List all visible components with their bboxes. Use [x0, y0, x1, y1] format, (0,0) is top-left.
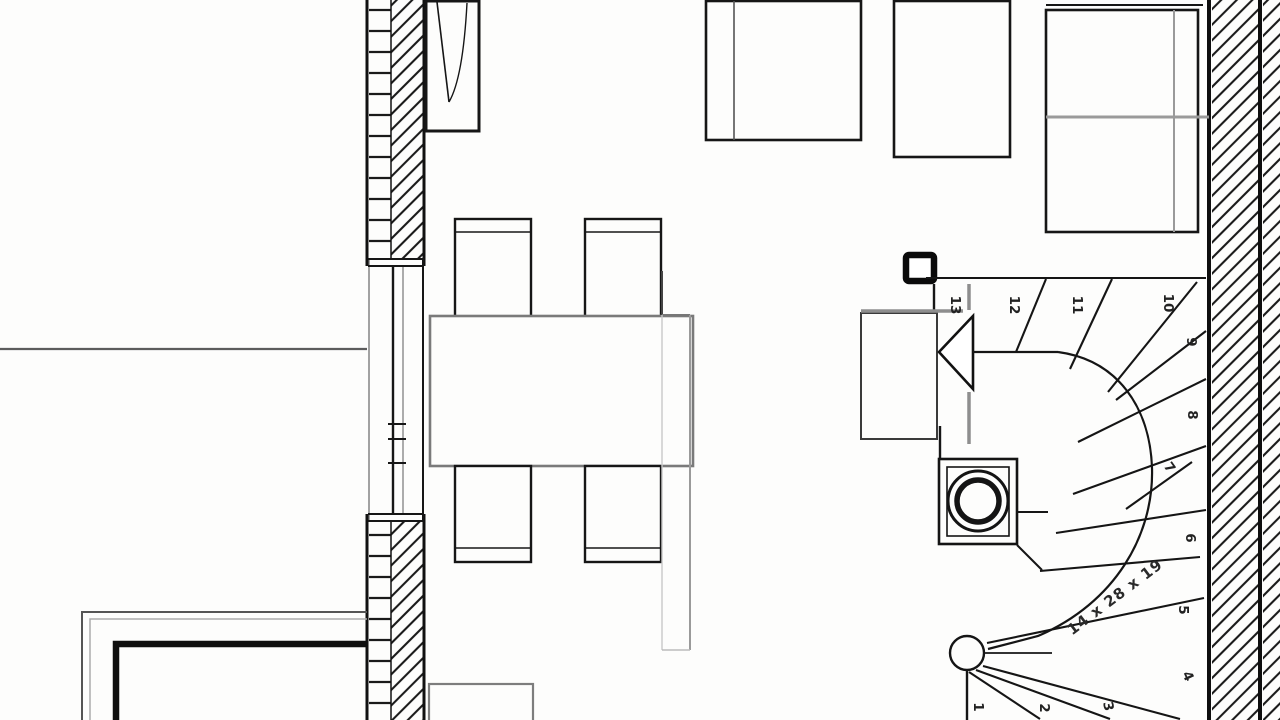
bed-right [894, 1, 1010, 157]
bed-left [706, 1, 861, 140]
entry-closet [426, 1, 479, 131]
step-number-10: 10 [1160, 294, 1176, 313]
step-number-12: 12 [1006, 296, 1022, 315]
cabinet-outline [861, 313, 937, 439]
right-exterior-wall [1209, 0, 1280, 720]
left-wall-insulation-bottom [369, 522, 391, 720]
step-number-6: 6 [1182, 533, 1198, 542]
step-number-13: 13 [947, 296, 963, 315]
chair-top-left [455, 219, 531, 329]
bed-right-outline [894, 1, 1010, 157]
step-number-1: 1 [970, 702, 986, 711]
left-wall-masonry-bottom [391, 522, 423, 720]
right-wall-masonry [1212, 0, 1258, 720]
step-number-5: 5 [1175, 605, 1191, 614]
dining-table [430, 316, 693, 466]
step-number-2: 2 [1036, 703, 1052, 712]
bed-left-outline [706, 1, 861, 140]
step-number-8: 8 [1184, 410, 1200, 419]
step-number-9: 9 [1183, 337, 1199, 346]
sofa [1046, 5, 1209, 232]
sofa-outline [1046, 10, 1198, 232]
floor-plan-drawing: 1 2 3 4 5 6 7 8 9 10 11 12 13 14 x 28 x … [0, 0, 1280, 720]
left-wall-insulation-top [369, 0, 391, 258]
left-wall-masonry-top [391, 0, 423, 258]
right-wall-cladding [1263, 0, 1280, 720]
step-number-11: 11 [1069, 296, 1085, 315]
closet-outline [426, 1, 479, 131]
floor-plan-canvas: 1 2 3 4 5 6 7 8 9 10 11 12 13 14 x 28 x … [0, 0, 1280, 720]
chair-top-right [585, 219, 661, 329]
